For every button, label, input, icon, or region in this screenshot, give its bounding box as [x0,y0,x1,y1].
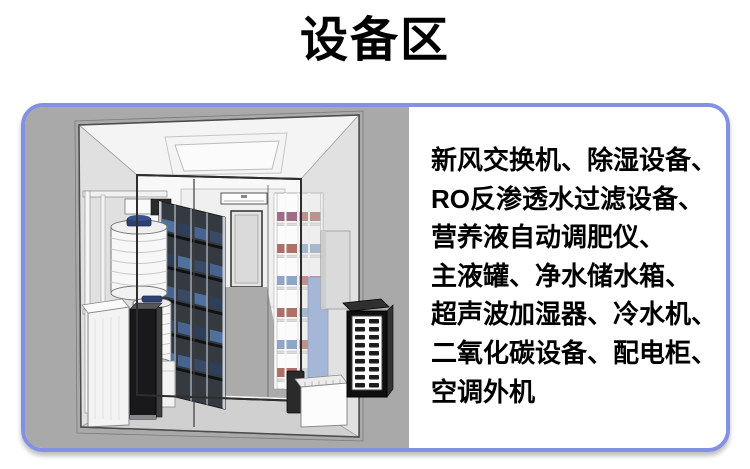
wall-ac-unit [221,193,267,204]
water-tank-large [111,215,167,300]
corridor-door [231,211,262,287]
page-title: 设备区 [0,14,750,68]
equipment-list-line: 营养液自动调肥仪、 [431,218,720,257]
equipment-list: 新风交换机、除湿设备、 RO反渗透水过滤设备、 营养液自动调肥仪、 主液罐、净水… [409,107,726,448]
equipment-panel: 新风交换机、除湿设备、 RO反渗透水过滤设备、 营养液自动调肥仪、 主液罐、净水… [21,103,730,452]
equipment-list-line: 超声波加湿器、冷水机、 [431,295,720,334]
storage-cabinet [82,299,129,427]
page: 设备区 [0,0,750,469]
equipment-room-illustration [25,107,409,448]
equipment-list-line: 空调外机 [431,373,720,412]
dehumidifier-cabinet [130,303,162,419]
louvered-vent-unit [343,299,393,397]
equipment-room-3d-svg [25,107,409,448]
ac-outdoor-unit [295,375,347,427]
equipment-list-line: 主液罐、净水储水箱、 [431,257,720,296]
equipment-list-line: 新风交换机、除湿设备、 [431,141,720,180]
equipment-list-line: RO反渗透水过滤设备、 [431,180,720,219]
equipment-list-line: 二氧化碳设备、配电柜、 [431,334,720,373]
